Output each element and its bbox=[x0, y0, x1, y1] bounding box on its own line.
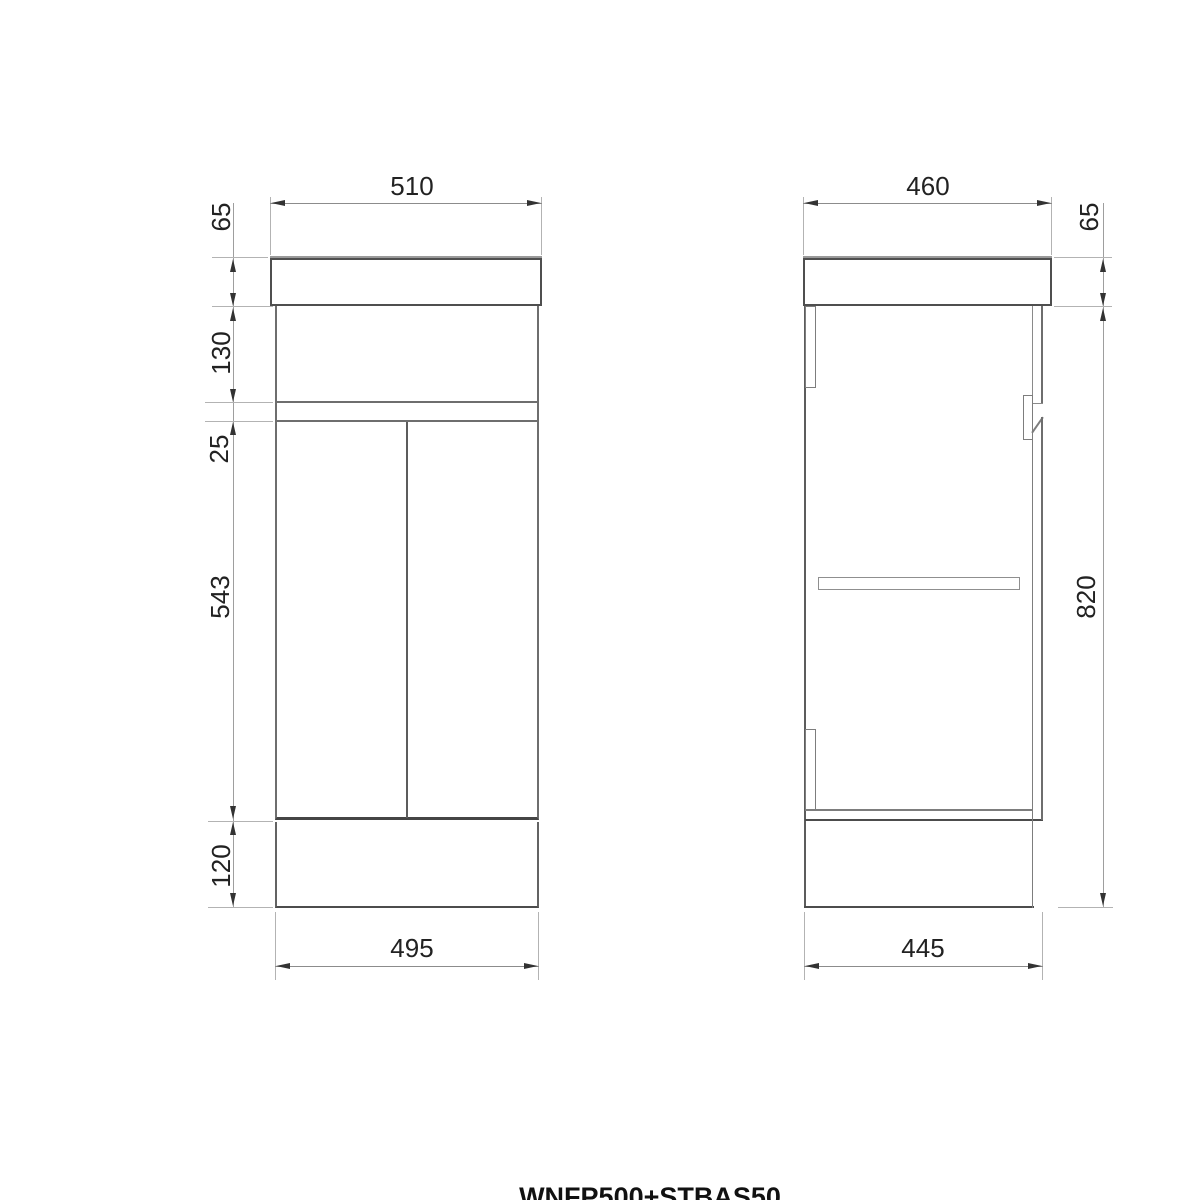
front-door-divider bbox=[406, 422, 408, 818]
technical-drawing-canvas: 510 460 65 130 25 543 120 bbox=[0, 0, 1200, 1200]
arrow-down-icon bbox=[230, 293, 236, 306]
arrow-up-icon bbox=[1100, 308, 1106, 321]
front-top-rail-band bbox=[275, 403, 539, 422]
side-top-mount-rail bbox=[805, 306, 816, 388]
dim-value-445: 445 bbox=[901, 935, 944, 961]
side-bottom-panel-line bbox=[805, 809, 1033, 811]
dim-value-460: 460 bbox=[906, 173, 949, 199]
extension-line bbox=[205, 402, 273, 403]
dim-value-65-side: 65 bbox=[1076, 203, 1102, 232]
arrow-down-icon bbox=[1100, 893, 1106, 906]
arrow-down-icon bbox=[230, 389, 236, 402]
side-door-handle-profile bbox=[1023, 395, 1033, 440]
extension-line bbox=[1054, 306, 1112, 307]
side-door-bottom-line bbox=[805, 819, 1043, 821]
side-door-outer-face bbox=[1041, 417, 1043, 820]
arrow-left-icon bbox=[276, 963, 290, 969]
dim-value-65-front: 65 bbox=[208, 203, 234, 232]
extension-line bbox=[1058, 907, 1113, 908]
dim-value-510: 510 bbox=[390, 173, 433, 199]
side-door-inner-plinth-front bbox=[1032, 440, 1033, 908]
extension-line bbox=[1042, 912, 1043, 980]
side-bottom-mount-rail bbox=[805, 729, 816, 810]
extension-line bbox=[275, 912, 276, 980]
product-code-label: WNFP500+STBAS50 bbox=[519, 1184, 781, 1200]
dimension-line bbox=[275, 966, 539, 967]
side-basin-outline bbox=[803, 258, 1052, 306]
arrow-right-icon bbox=[1037, 200, 1051, 206]
front-plinth-outline bbox=[275, 822, 539, 908]
dim-value-25: 25 bbox=[206, 435, 232, 464]
arrow-right-icon bbox=[1028, 963, 1042, 969]
arrow-left-icon bbox=[805, 963, 819, 969]
arrow-right-icon bbox=[524, 963, 538, 969]
dim-value-495: 495 bbox=[390, 935, 433, 961]
dim-value-120: 120 bbox=[208, 844, 234, 887]
extension-line bbox=[804, 912, 805, 980]
dimension-line bbox=[803, 203, 1052, 204]
dim-value-130: 130 bbox=[208, 331, 234, 374]
arrow-up-icon bbox=[1100, 259, 1106, 272]
extension-line bbox=[212, 306, 273, 307]
front-upper-panel bbox=[275, 306, 539, 403]
arrow-left-icon bbox=[271, 200, 285, 206]
arrow-left-icon bbox=[804, 200, 818, 206]
extension-line bbox=[1051, 197, 1052, 255]
dim-value-543: 543 bbox=[207, 575, 233, 618]
arrow-up-icon bbox=[230, 822, 236, 835]
arrow-up-icon bbox=[230, 308, 236, 321]
dimension-line bbox=[270, 203, 542, 204]
extension-line bbox=[212, 257, 268, 258]
arrow-up-icon bbox=[230, 259, 236, 272]
side-front-panel-inner bbox=[1032, 306, 1033, 404]
extension-line bbox=[1054, 257, 1112, 258]
extension-line bbox=[208, 907, 273, 908]
extension-line bbox=[205, 421, 273, 422]
arrow-down-icon bbox=[1100, 293, 1106, 306]
dimension-line bbox=[804, 966, 1043, 967]
arrow-right-icon bbox=[527, 200, 541, 206]
side-front-panel-outer bbox=[1041, 306, 1043, 404]
arrow-down-icon bbox=[230, 893, 236, 906]
extension-line bbox=[208, 821, 273, 822]
side-shelf bbox=[818, 577, 1020, 590]
front-basin-outline bbox=[270, 258, 542, 306]
arrow-up-icon bbox=[230, 422, 236, 435]
side-plinth-bottom-line bbox=[804, 906, 1034, 908]
arrow-down-icon bbox=[230, 806, 236, 819]
extension-line bbox=[538, 912, 539, 980]
side-back-edge bbox=[804, 306, 806, 908]
dim-value-820: 820 bbox=[1073, 575, 1099, 618]
extension-line bbox=[541, 197, 542, 255]
side-front-panel-bottom-edge bbox=[1032, 403, 1043, 404]
